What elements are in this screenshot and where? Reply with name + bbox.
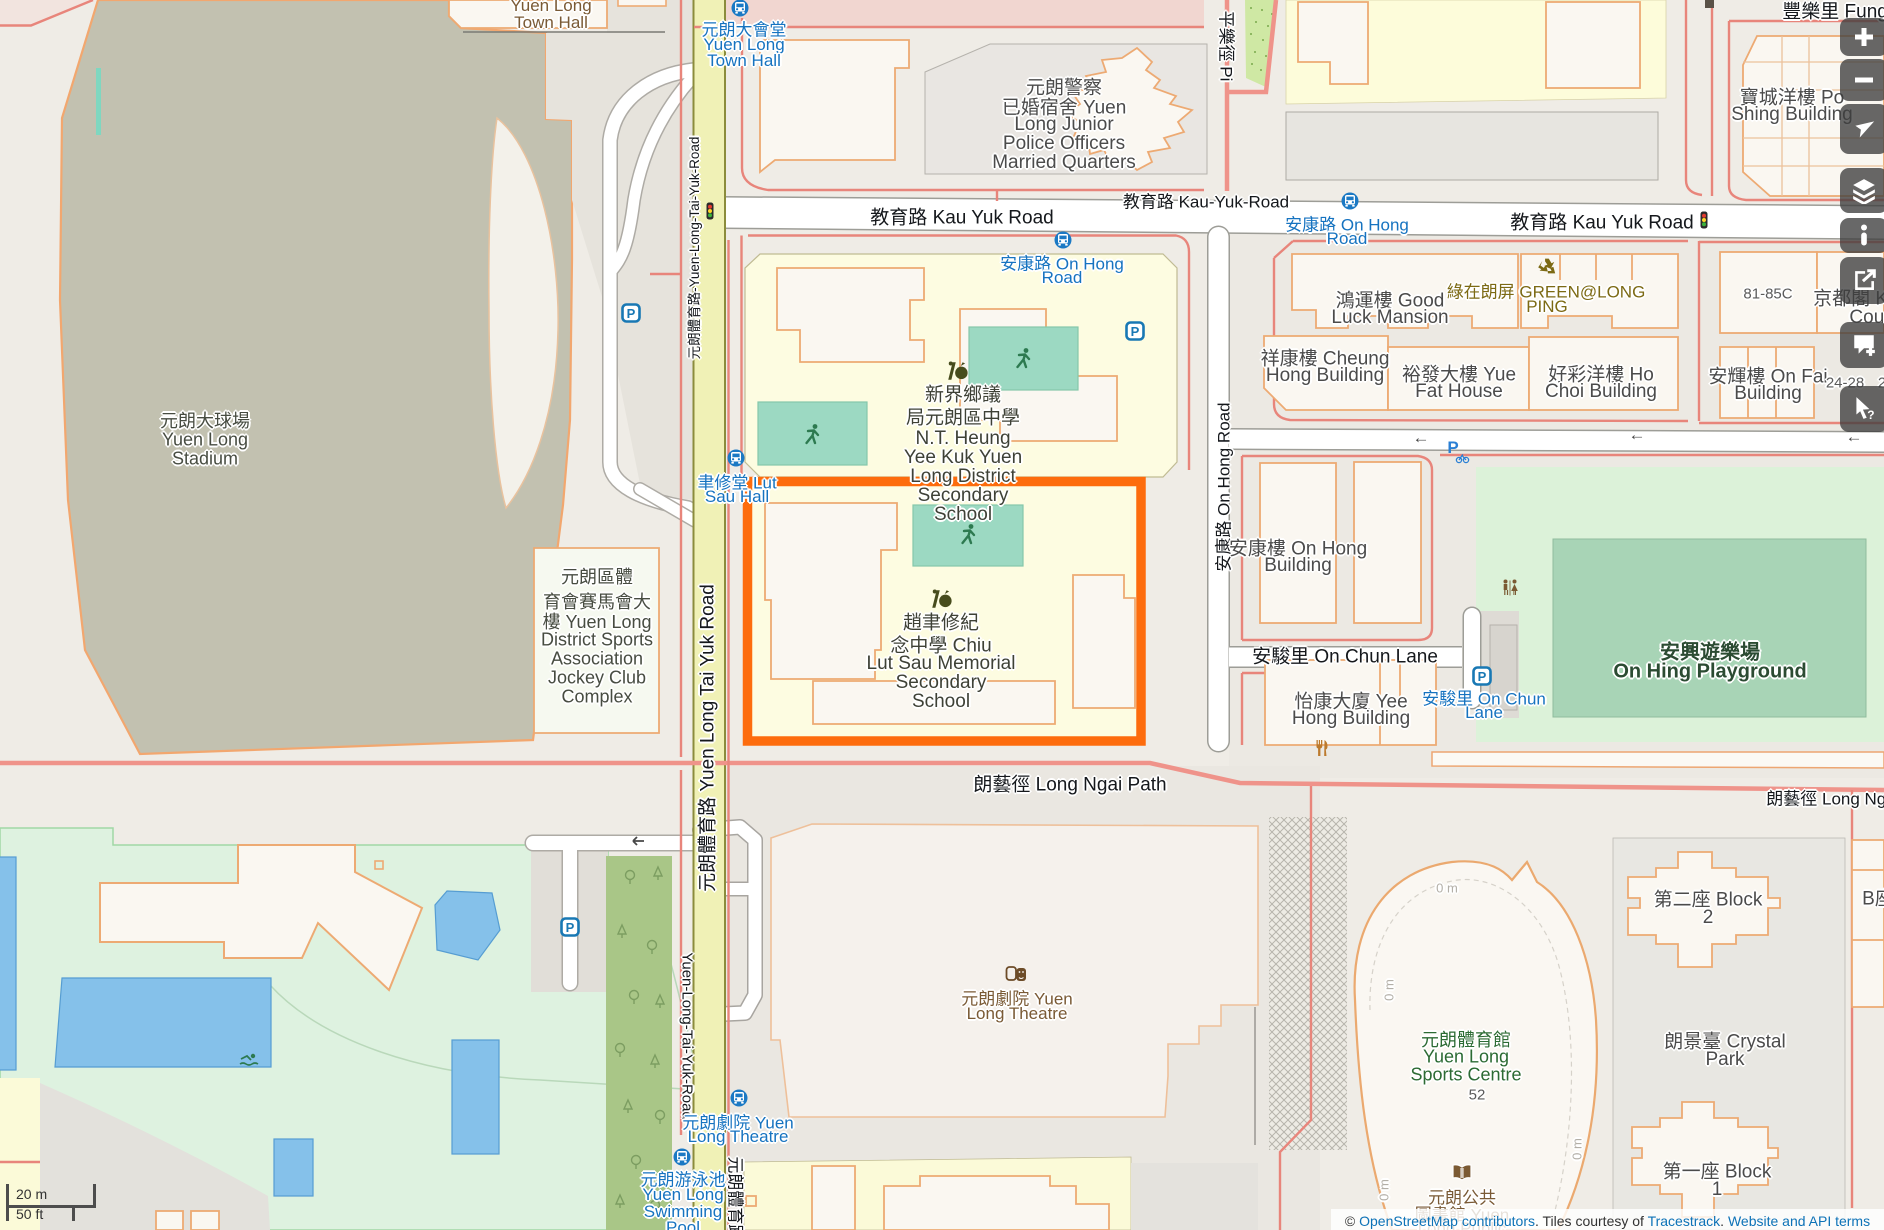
svg-text:P: P	[1447, 438, 1458, 457]
svg-text:?: ?	[1867, 408, 1874, 421]
